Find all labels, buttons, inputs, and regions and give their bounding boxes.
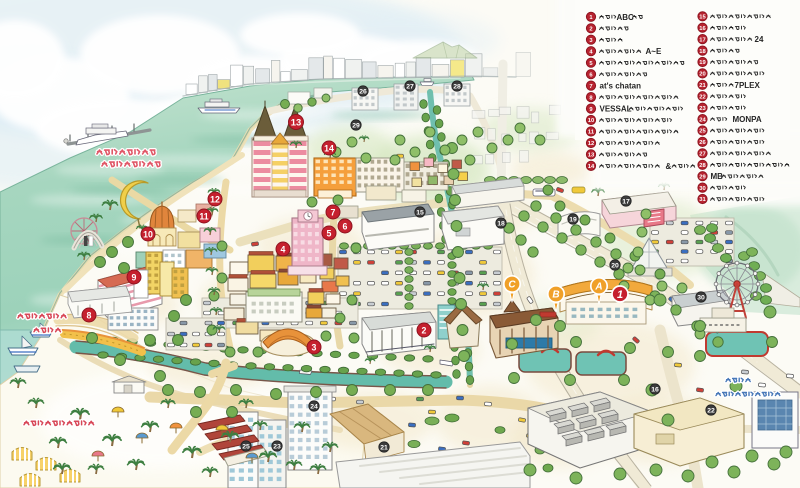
svg-text:14: 14: [324, 143, 334, 153]
svg-text:12: 12: [210, 194, 220, 204]
svg-text:7: 7: [589, 84, 592, 90]
svg-text:11: 11: [588, 130, 595, 136]
svg-text:27: 27: [699, 152, 705, 158]
svg-text:16: 16: [651, 387, 659, 394]
svg-text:20: 20: [611, 263, 619, 270]
svg-text:28: 28: [699, 163, 706, 169]
svg-text:2: 2: [422, 325, 427, 335]
svg-text:15: 15: [416, 210, 424, 217]
svg-text:7PLEX: 7PLEX: [735, 81, 761, 90]
svg-text:29: 29: [352, 123, 360, 130]
svg-text:18: 18: [699, 49, 706, 55]
svg-text:A~E: A~E: [646, 47, 662, 56]
svg-text:2: 2: [589, 27, 592, 33]
svg-text:4: 4: [281, 244, 286, 254]
svg-text:31: 31: [699, 197, 706, 203]
svg-text:16: 16: [699, 26, 706, 32]
svg-text:17: 17: [699, 37, 705, 43]
svg-text:19: 19: [699, 60, 706, 66]
svg-text:9: 9: [132, 272, 137, 282]
svg-text:22: 22: [699, 94, 705, 100]
svg-text:10: 10: [143, 229, 153, 239]
svg-text:23: 23: [273, 444, 281, 451]
svg-text:C: C: [508, 280, 516, 291]
svg-text:MB: MB: [711, 172, 724, 181]
svg-text:at's chatan: at's chatan: [600, 82, 642, 91]
svg-text:ABC: ABC: [617, 13, 635, 22]
svg-text:30: 30: [699, 186, 705, 192]
svg-text:14: 14: [588, 164, 595, 170]
svg-text:29: 29: [699, 174, 706, 180]
svg-text:B: B: [552, 290, 559, 301]
svg-text:21: 21: [699, 83, 706, 89]
svg-text:25: 25: [242, 444, 250, 451]
svg-text:19: 19: [569, 217, 577, 224]
svg-text:13: 13: [588, 153, 595, 159]
svg-text:17: 17: [622, 199, 630, 206]
svg-text:3: 3: [312, 342, 317, 352]
svg-text:25: 25: [699, 129, 706, 135]
svg-text:12: 12: [588, 141, 594, 147]
svg-text:VESSAL: VESSAL: [600, 105, 632, 114]
svg-text:18: 18: [497, 221, 505, 228]
svg-text:A: A: [594, 282, 602, 293]
svg-text:24: 24: [699, 117, 706, 123]
svg-text:28: 28: [453, 84, 461, 91]
svg-text:15: 15: [699, 15, 706, 21]
svg-text:6: 6: [343, 221, 348, 231]
svg-text:MONPA: MONPA: [733, 115, 762, 124]
svg-text:22: 22: [707, 408, 715, 415]
svg-text:30: 30: [697, 295, 705, 302]
svg-text:1: 1: [617, 289, 623, 301]
svg-text:&: &: [666, 162, 672, 171]
svg-text:5: 5: [327, 228, 332, 238]
svg-text:8: 8: [87, 310, 92, 320]
svg-text:11: 11: [199, 211, 208, 221]
svg-text:24: 24: [755, 35, 764, 44]
svg-text:20: 20: [699, 72, 705, 78]
svg-text:7: 7: [331, 207, 336, 217]
svg-text:13: 13: [291, 117, 301, 128]
svg-text:27: 27: [406, 84, 414, 91]
svg-text:24: 24: [310, 404, 318, 411]
svg-text:21: 21: [380, 445, 388, 452]
svg-text:10: 10: [588, 118, 594, 124]
svg-text:26: 26: [699, 140, 706, 146]
svg-text:26: 26: [359, 89, 367, 96]
svg-text:23: 23: [699, 106, 706, 112]
